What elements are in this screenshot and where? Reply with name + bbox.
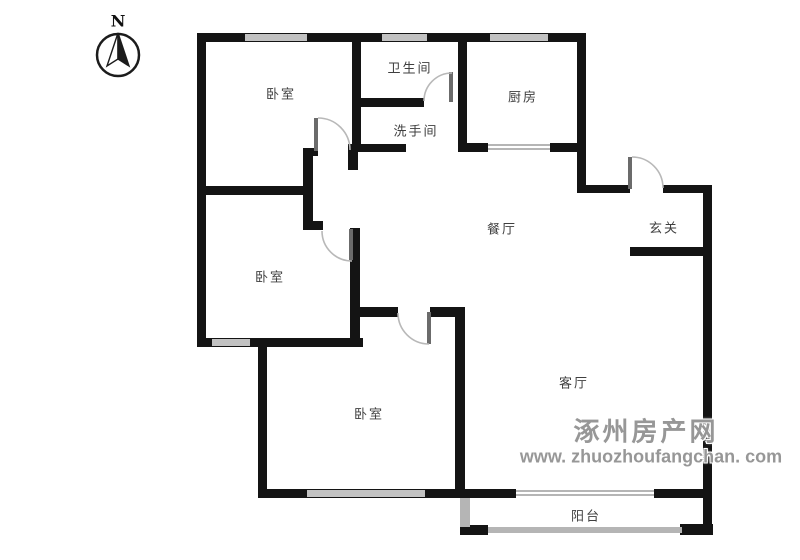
room-label-bedroom-middle: 卧室: [255, 267, 285, 286]
room-label-washroom: 洗手间: [393, 121, 438, 140]
room-label-bedroom-bottom: 卧室: [354, 404, 384, 423]
door-arc: [632, 157, 663, 188]
door-arc: [424, 73, 452, 101]
room-label-entry: 玄关: [649, 218, 679, 237]
door-arc: [398, 313, 429, 344]
room-label-balcony: 阳台: [571, 506, 601, 525]
compass-icon: [97, 33, 139, 76]
door-arc: [322, 231, 352, 261]
room-label-bedroom-top: 卧室: [266, 84, 296, 103]
compass-north-label: N: [111, 12, 126, 31]
watermark-site-url: www. zhuozhoufangchan. com: [520, 447, 782, 468]
door-arc: [318, 118, 350, 150]
room-label-living: 客厅: [559, 373, 589, 392]
room-label-dining: 餐厅: [487, 219, 517, 238]
floorplan-image: N 卧室 卫生间 洗手间 厨房 餐厅 玄关 卧室 卧室 客厅 阳台 涿州房产网 …: [0, 0, 800, 560]
room-label-toilet: 卫生间: [387, 58, 432, 77]
watermark-site-name: 涿州房产网: [573, 412, 718, 449]
room-label-kitchen: 厨房: [508, 87, 538, 106]
